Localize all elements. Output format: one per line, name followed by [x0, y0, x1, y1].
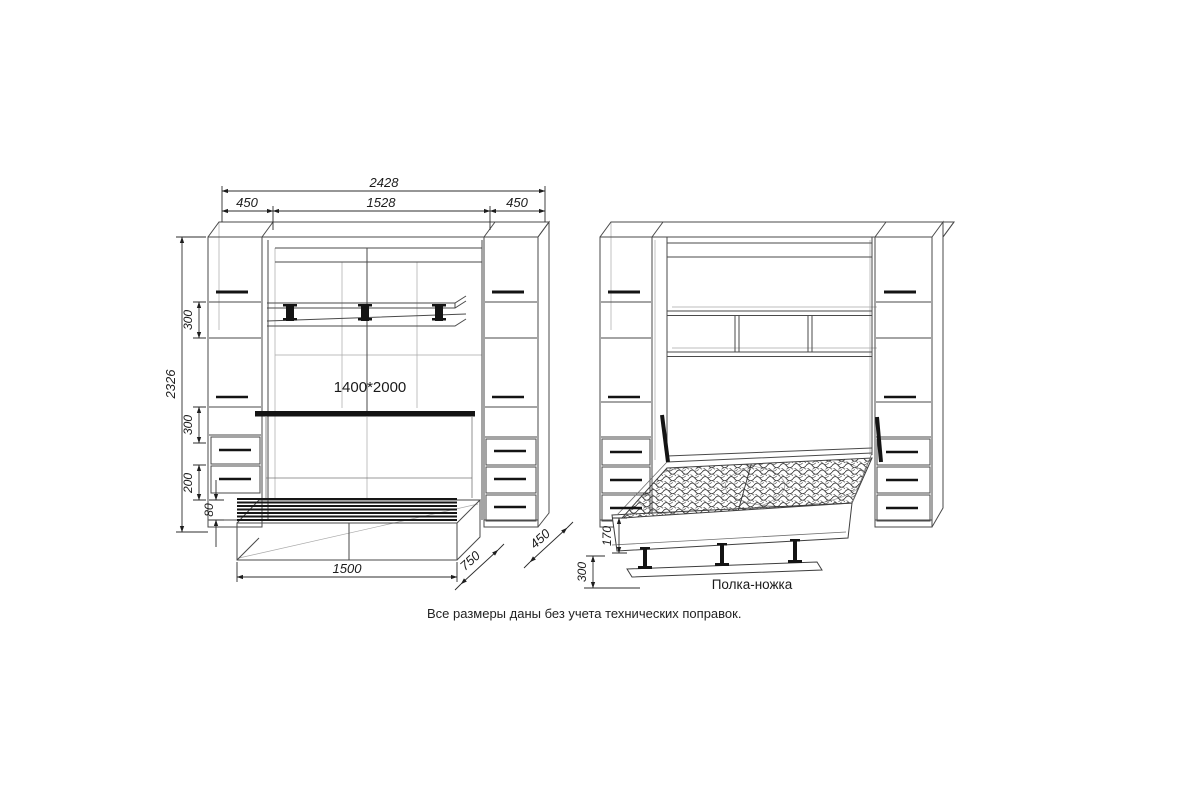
- dim-total-width: 2428: [369, 175, 400, 190]
- dim-bed-frame-height: 170: [600, 526, 614, 546]
- dim-right-cabinet-width: 450: [506, 195, 528, 210]
- open-view-drawing: 170 300 Полка-ножка: [575, 222, 954, 592]
- dim-lower-shelf-spacing: 300: [181, 415, 195, 435]
- dim-total-height: 2326: [163, 369, 178, 400]
- blueprint-page: 2428 450 1528 450 2326 300 300 200 80 14…: [0, 0, 1200, 800]
- dim-cabinet-depth: 450: [527, 525, 554, 551]
- dim-drawer-section-height: 200: [181, 473, 195, 494]
- gas-lift-right: [877, 417, 881, 462]
- shelf-brackets: [283, 304, 446, 321]
- dim-bench-depth: 750: [457, 547, 484, 573]
- dim-plinth-height: 80: [202, 503, 216, 517]
- closed-view-drawing: 2428 450 1528 450 2326 300 300 200 80 14…: [163, 175, 573, 590]
- bench-slats: [237, 499, 457, 520]
- bed-size-label: 1400*2000: [334, 379, 407, 396]
- dim-bench-length: 1500: [333, 561, 363, 576]
- dim-floor-clearance: 300: [575, 562, 589, 582]
- wall-bed-blueprint: 2428 450 1528 450 2326 300 300 200 80 14…: [0, 0, 1200, 800]
- shelf-leg-label: Полка-ножка: [712, 577, 793, 592]
- disclaimer-note: Все размеры даны без учета технических п…: [427, 606, 741, 621]
- dim-center-width: 1528: [367, 195, 397, 210]
- folded-bed-edge: [255, 411, 475, 417]
- dim-left-cabinet-width: 450: [236, 195, 258, 210]
- dim-upper-shelf-spacing: 300: [181, 310, 195, 330]
